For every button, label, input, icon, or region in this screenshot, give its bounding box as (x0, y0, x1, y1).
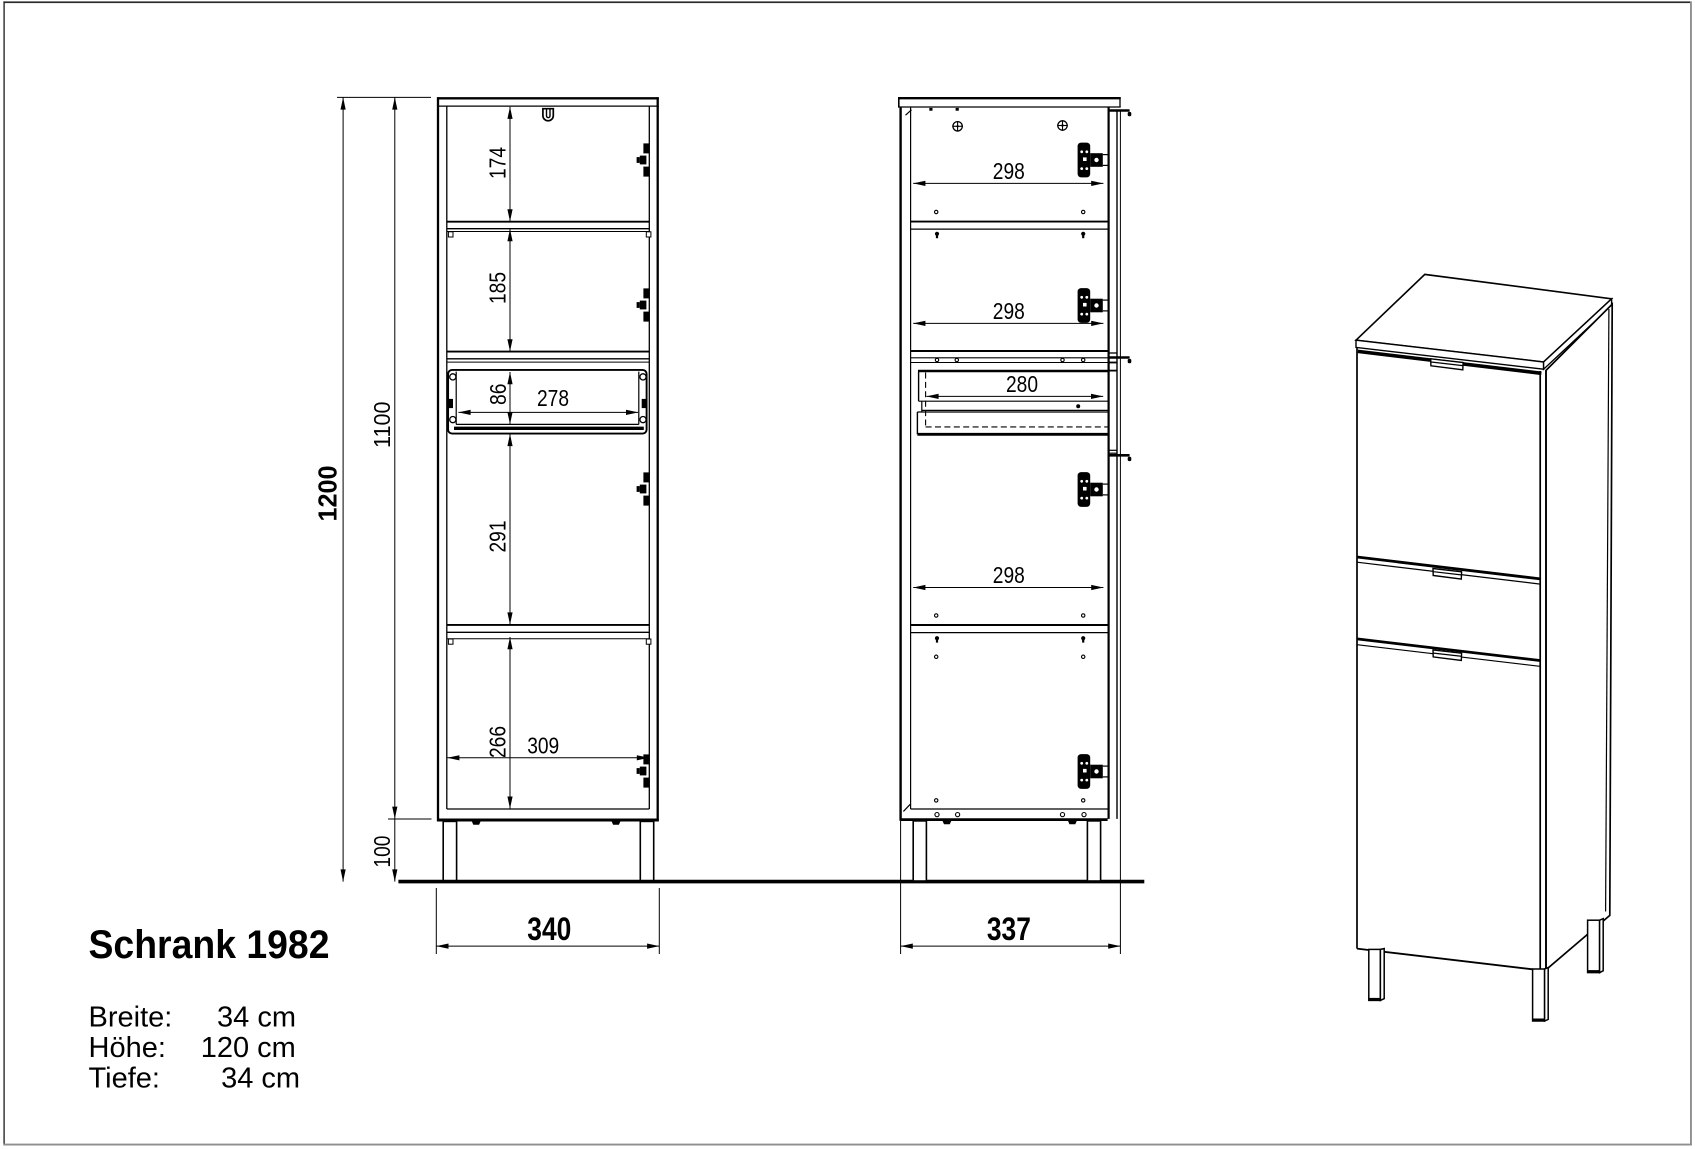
svg-text:337: 337 (987, 911, 1031, 947)
svg-text:298: 298 (993, 562, 1025, 588)
svg-text:298: 298 (993, 298, 1025, 324)
svg-text:185: 185 (484, 272, 510, 304)
svg-text:340: 340 (527, 911, 571, 947)
svg-text:266: 266 (484, 726, 510, 758)
svg-text:Schrank 1982: Schrank 1982 (89, 923, 330, 967)
svg-text:34 cm: 34 cm (217, 1002, 296, 1034)
svg-text:Höhe:: Höhe: (89, 1032, 166, 1064)
svg-text:Tiefe:: Tiefe: (89, 1063, 160, 1095)
svg-text:Breite:: Breite: (89, 1002, 173, 1034)
svg-text:100: 100 (369, 836, 395, 868)
svg-text:309: 309 (527, 733, 559, 759)
svg-text:1200: 1200 (313, 466, 343, 522)
svg-text:291: 291 (484, 521, 510, 553)
svg-text:34 cm: 34 cm (221, 1063, 300, 1095)
svg-text:86: 86 (485, 384, 511, 406)
svg-text:280: 280 (1006, 371, 1038, 397)
svg-text:174: 174 (484, 147, 510, 179)
svg-text:1100: 1100 (369, 401, 395, 448)
svg-text:298: 298 (993, 158, 1025, 184)
svg-text:120 cm: 120 cm (201, 1032, 296, 1064)
svg-text:278: 278 (537, 385, 569, 411)
